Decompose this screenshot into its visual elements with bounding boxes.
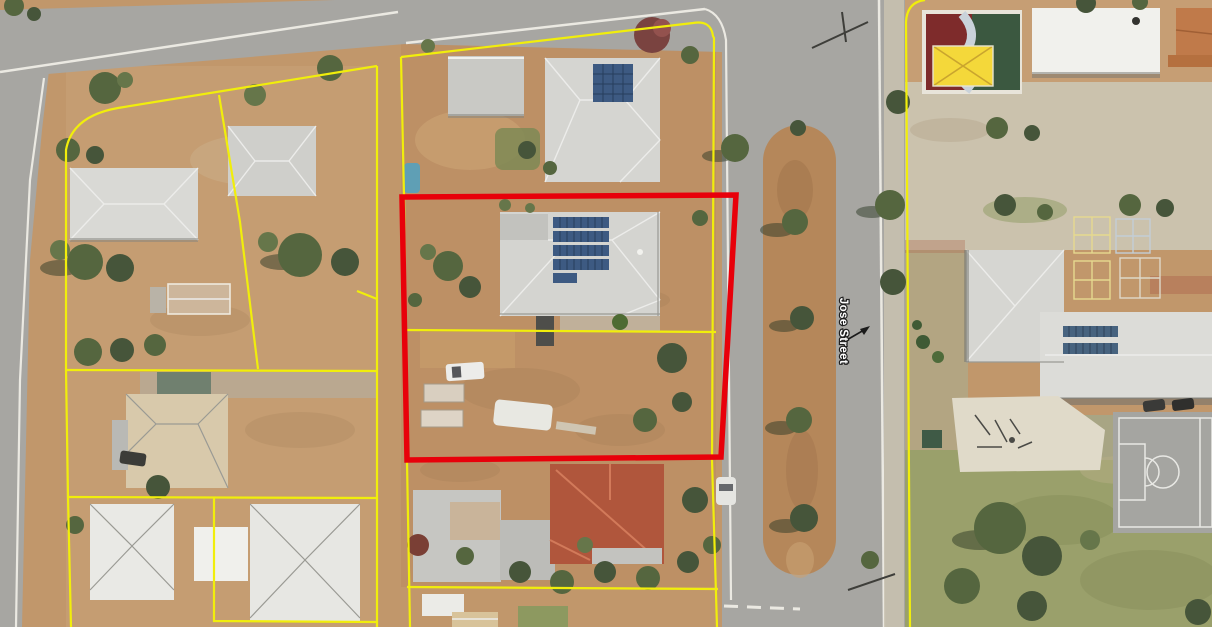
house-with-solar-roof [545, 58, 660, 182]
house-roof [90, 504, 174, 600]
shed-roof [150, 284, 230, 314]
utility-box [922, 430, 942, 448]
highlighted-parcel-house [500, 212, 660, 316]
aerial-imagery: Jose Street [0, 0, 1212, 627]
house-roof [112, 394, 228, 488]
solar-panels [593, 64, 633, 102]
house-roof [228, 126, 316, 196]
trailer [421, 410, 463, 427]
terracotta-roof-house [550, 464, 664, 564]
aerial-map-canvas[interactable]: Jose Street [0, 0, 1212, 627]
shade-canopy [933, 46, 993, 86]
street-label: Jose Street [837, 298, 849, 364]
house-roof [70, 168, 198, 242]
trailer [424, 384, 464, 402]
small-building-roof [194, 527, 248, 581]
white-ute [445, 362, 484, 382]
house-roof [250, 504, 360, 622]
shed-roof [448, 56, 524, 118]
basketball-court [1113, 412, 1212, 533]
swimming-pool [404, 163, 420, 193]
school-hall-building [1032, 8, 1160, 78]
road-vehicle-ute [716, 477, 736, 505]
